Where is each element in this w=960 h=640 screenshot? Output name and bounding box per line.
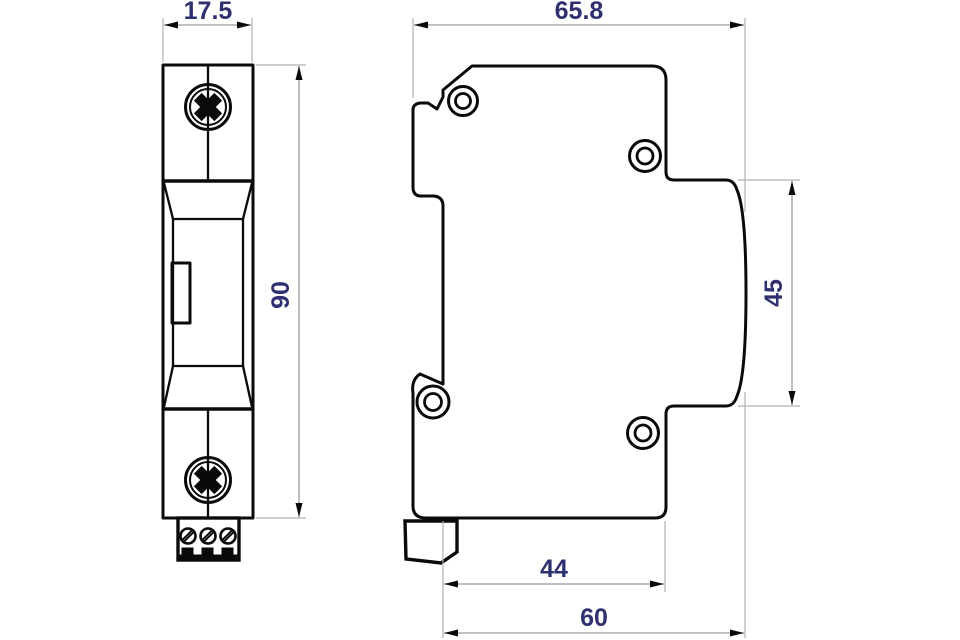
arrowhead-right [730,630,744,637]
arrowhead-up [789,181,796,195]
dimension-front-height: 90 [256,65,306,518]
drawing-svg: 17.5 65.8 90 45 44 [0,0,960,640]
dimension-value: 17.5 [184,0,233,25]
bevel-top-left [164,183,173,219]
side-view [405,66,746,563]
arrowhead-left [414,22,428,29]
arrowhead-down [789,391,796,405]
technical-drawing-canvas: 17.5 65.8 90 45 44 [0,0,960,640]
rivet-inner [456,94,471,109]
side-terminal-block [405,521,457,563]
rivet-hole-icon-3 [417,386,449,418]
rivet-outer [630,141,661,172]
dimension-front-width: 17.5 [163,0,252,62]
dimension-value: 45 [760,279,788,307]
arrowhead-left [164,22,178,29]
rivet-outer [449,87,478,116]
dimension-value: 60 [580,604,608,632]
rivet-inner [637,148,653,164]
bevel-bottom-right [243,366,252,407]
slotted-screw-icon-2 [201,529,216,544]
terminal-pad-1 [182,548,194,556]
arrowhead-left [444,630,458,637]
dimension-value: 65.8 [555,0,604,25]
dimension-value: 44 [540,555,568,583]
arrowhead-up [296,66,303,80]
terminal-screw-ring [221,529,236,544]
arrowhead-left [444,581,458,588]
slotted-screw-icon-1 [181,529,196,544]
label-window [172,263,190,323]
rivet-inner [635,425,651,441]
slotted-screw-icon-3 [221,529,236,544]
rivet-outer [417,386,449,418]
front-view [163,65,253,560]
rivet-hole-icon-1 [449,87,478,116]
rivet-inner [425,394,442,411]
rivet-hole-icon-2 [630,141,661,172]
arrowhead-down [296,503,303,517]
bevel-top-right [243,183,252,219]
terminal-pad-3 [222,548,234,556]
dimension-bottom-outer: 60 [444,392,745,638]
rivet-hole-icon-4 [628,418,659,449]
bevel-bottom-left [164,366,173,407]
dimension-value: 90 [267,281,295,309]
terminal-screw-ring [201,529,216,544]
dimension-bottom-inner: 44 [443,521,665,638]
terminal-block [178,518,239,560]
arrowhead-right [730,22,744,29]
terminal-screw-ring [181,529,196,544]
side-body-outline [413,66,746,518]
arrowhead-right [237,22,251,29]
arrowhead-right [650,581,664,588]
terminal-pad-2 [202,548,214,556]
rivet-outer [628,418,659,449]
